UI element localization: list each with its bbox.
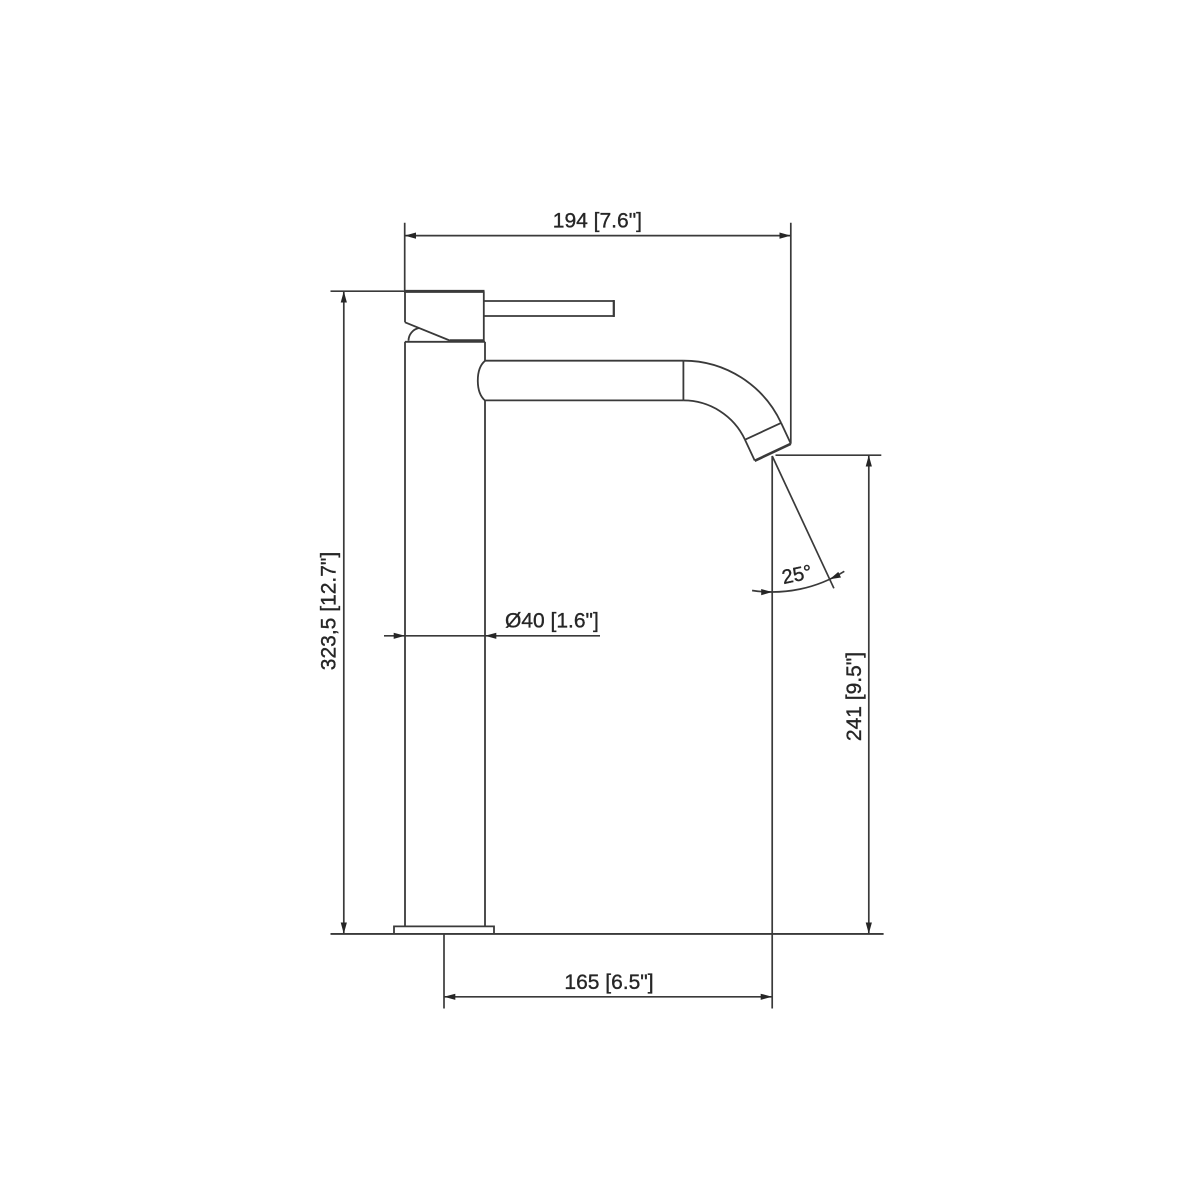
svg-text:323,5 [12.7"]: 323,5 [12.7"]: [318, 552, 341, 670]
svg-text:194 [7.6"]: 194 [7.6"]: [553, 210, 642, 233]
svg-text:165 [6.5"]: 165 [6.5"]: [564, 971, 653, 994]
svg-text:Ø40 [1.6"]: Ø40 [1.6"]: [505, 610, 599, 633]
svg-text:241 [9.5"]: 241 [9.5"]: [843, 652, 866, 741]
